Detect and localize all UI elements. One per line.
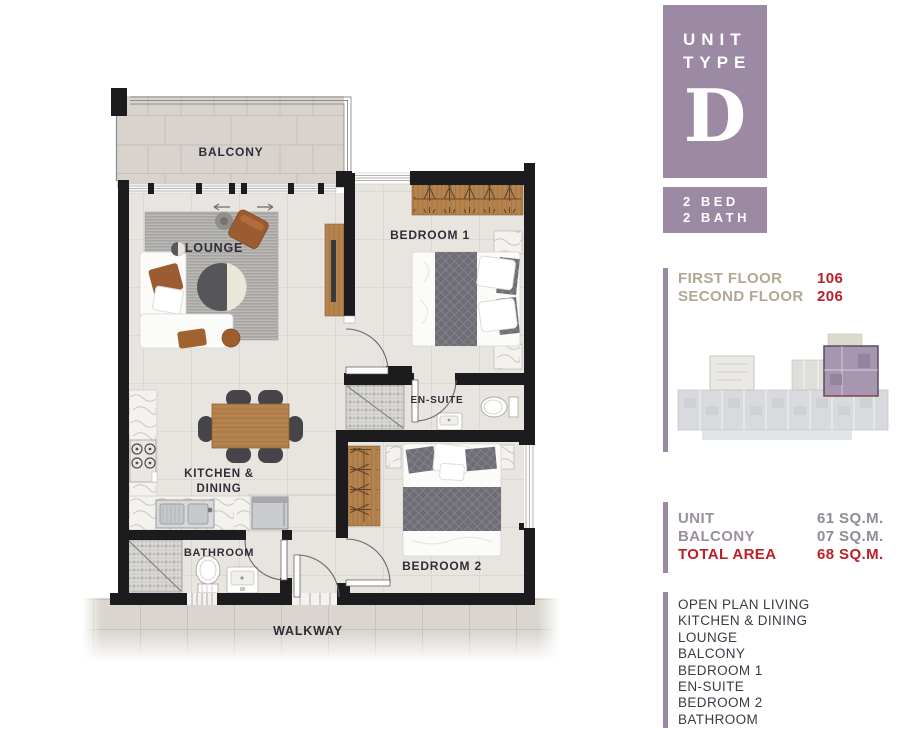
unit-area-value: 61 SQ.M. [817, 510, 884, 527]
room-bedroom1 [412, 183, 523, 369]
room-balcony [117, 96, 352, 188]
label-balcony: BALCONY [199, 145, 264, 159]
unit-area-label: UNIT [678, 510, 715, 527]
balcony-area-value: 07 SQ.M. [817, 528, 884, 545]
areas-section-bar [663, 502, 668, 573]
kitchen-sink [156, 500, 214, 528]
unit-area-row: UNIT 61 SQ.M. [678, 510, 893, 528]
bed-bath-badge: 2 BED 2 BATH [663, 187, 767, 233]
label-kitchen-line1: KITCHEN & [184, 468, 254, 480]
bedroom1-top-window [350, 173, 410, 184]
feature-item: BATHROOM [678, 712, 810, 728]
toilet [196, 556, 220, 593]
feature-item: OPEN PLAN LIVING [678, 597, 810, 613]
total-area-label: TOTAL AREA [678, 546, 776, 563]
total-area-row: TOTAL AREA 68 SQ.M. [678, 546, 893, 564]
feature-item: EN-SUITE [678, 679, 810, 695]
floors-section-bar [663, 268, 668, 452]
bed-count: 2 BED [683, 194, 767, 210]
ensuite-toilet [481, 397, 518, 417]
key-plan [672, 326, 898, 450]
feature-item: KITCHEN & DINING [678, 613, 810, 629]
second-floor-row: SECOND FLOOR 206 [678, 288, 893, 306]
unit-letter: D [663, 80, 767, 152]
label-ensuite: EN-SUITE [410, 395, 463, 406]
bathroom-sink [227, 567, 258, 593]
unit-type-d-floorplan-page: BALCONY LOUNGE BEDROOM 1 EN-SUITE KITCHE… [0, 0, 900, 736]
label-lounge: LOUNGE [185, 241, 243, 255]
label-kitchen-line2: DINING [196, 483, 241, 495]
features-list: OPEN PLAN LIVING KITCHEN & DINING LOUNGE… [678, 597, 810, 728]
ensuite-sink [437, 413, 462, 430]
label-bathroom: BATHROOM [184, 547, 254, 559]
label-bedroom2: BEDROOM 2 [402, 559, 482, 573]
second-floor-number: 206 [817, 288, 843, 305]
first-floor-row: FIRST FLOOR 106 [678, 270, 893, 288]
feature-item: LOUNGE [678, 630, 810, 646]
feature-item: BEDROOM 2 [678, 695, 810, 711]
balcony-area-row: BALCONY 07 SQ.M. [678, 528, 893, 546]
stove [130, 440, 157, 482]
fridge [252, 497, 288, 529]
first-floor-number: 106 [817, 270, 843, 287]
dining-table [212, 404, 289, 448]
floor-plan: BALCONY LOUNGE BEDROOM 1 EN-SUITE KITCHE… [0, 0, 660, 736]
highlighted-unit [824, 346, 878, 396]
label-bedroom1: BEDROOM 1 [390, 228, 470, 242]
first-floor-label: FIRST FLOOR [678, 270, 782, 287]
feature-item: BALCONY [678, 646, 810, 662]
type-word: TYPE [683, 51, 767, 74]
bedroom2-window [524, 445, 535, 528]
unit-type-badge: UNIT TYPE D [663, 5, 767, 178]
features-section-bar [663, 592, 668, 728]
bath-count: 2 BATH [683, 210, 767, 226]
total-area-value: 68 SQ.M. [817, 546, 884, 563]
balcony-area-label: BALCONY [678, 528, 755, 545]
unit-word: UNIT [683, 28, 767, 51]
second-floor-label: SECOND FLOOR [678, 288, 804, 305]
label-walkway: WALKWAY [273, 624, 343, 638]
feature-item: BEDROOM 1 [678, 663, 810, 679]
